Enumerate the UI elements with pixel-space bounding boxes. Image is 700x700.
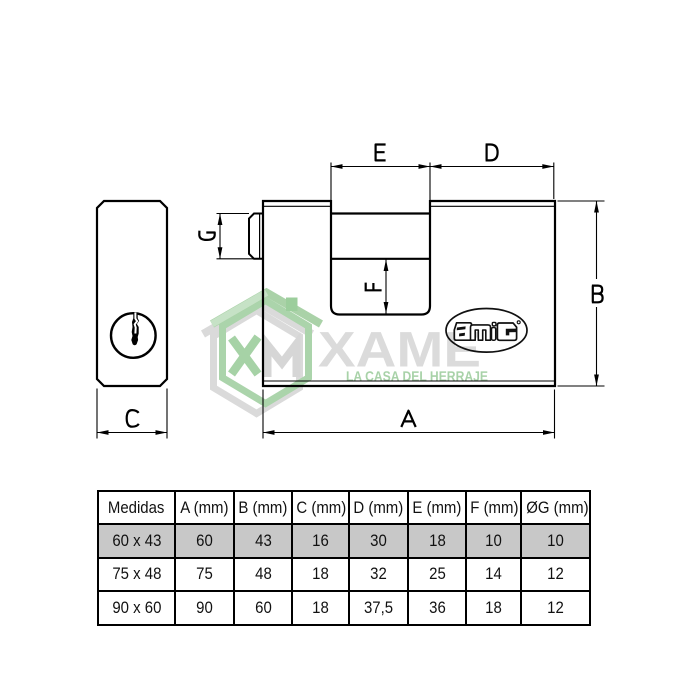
svg-text:LA CASA DEL HERRAJE: LA CASA DEL HERRAJE — [346, 368, 488, 384]
